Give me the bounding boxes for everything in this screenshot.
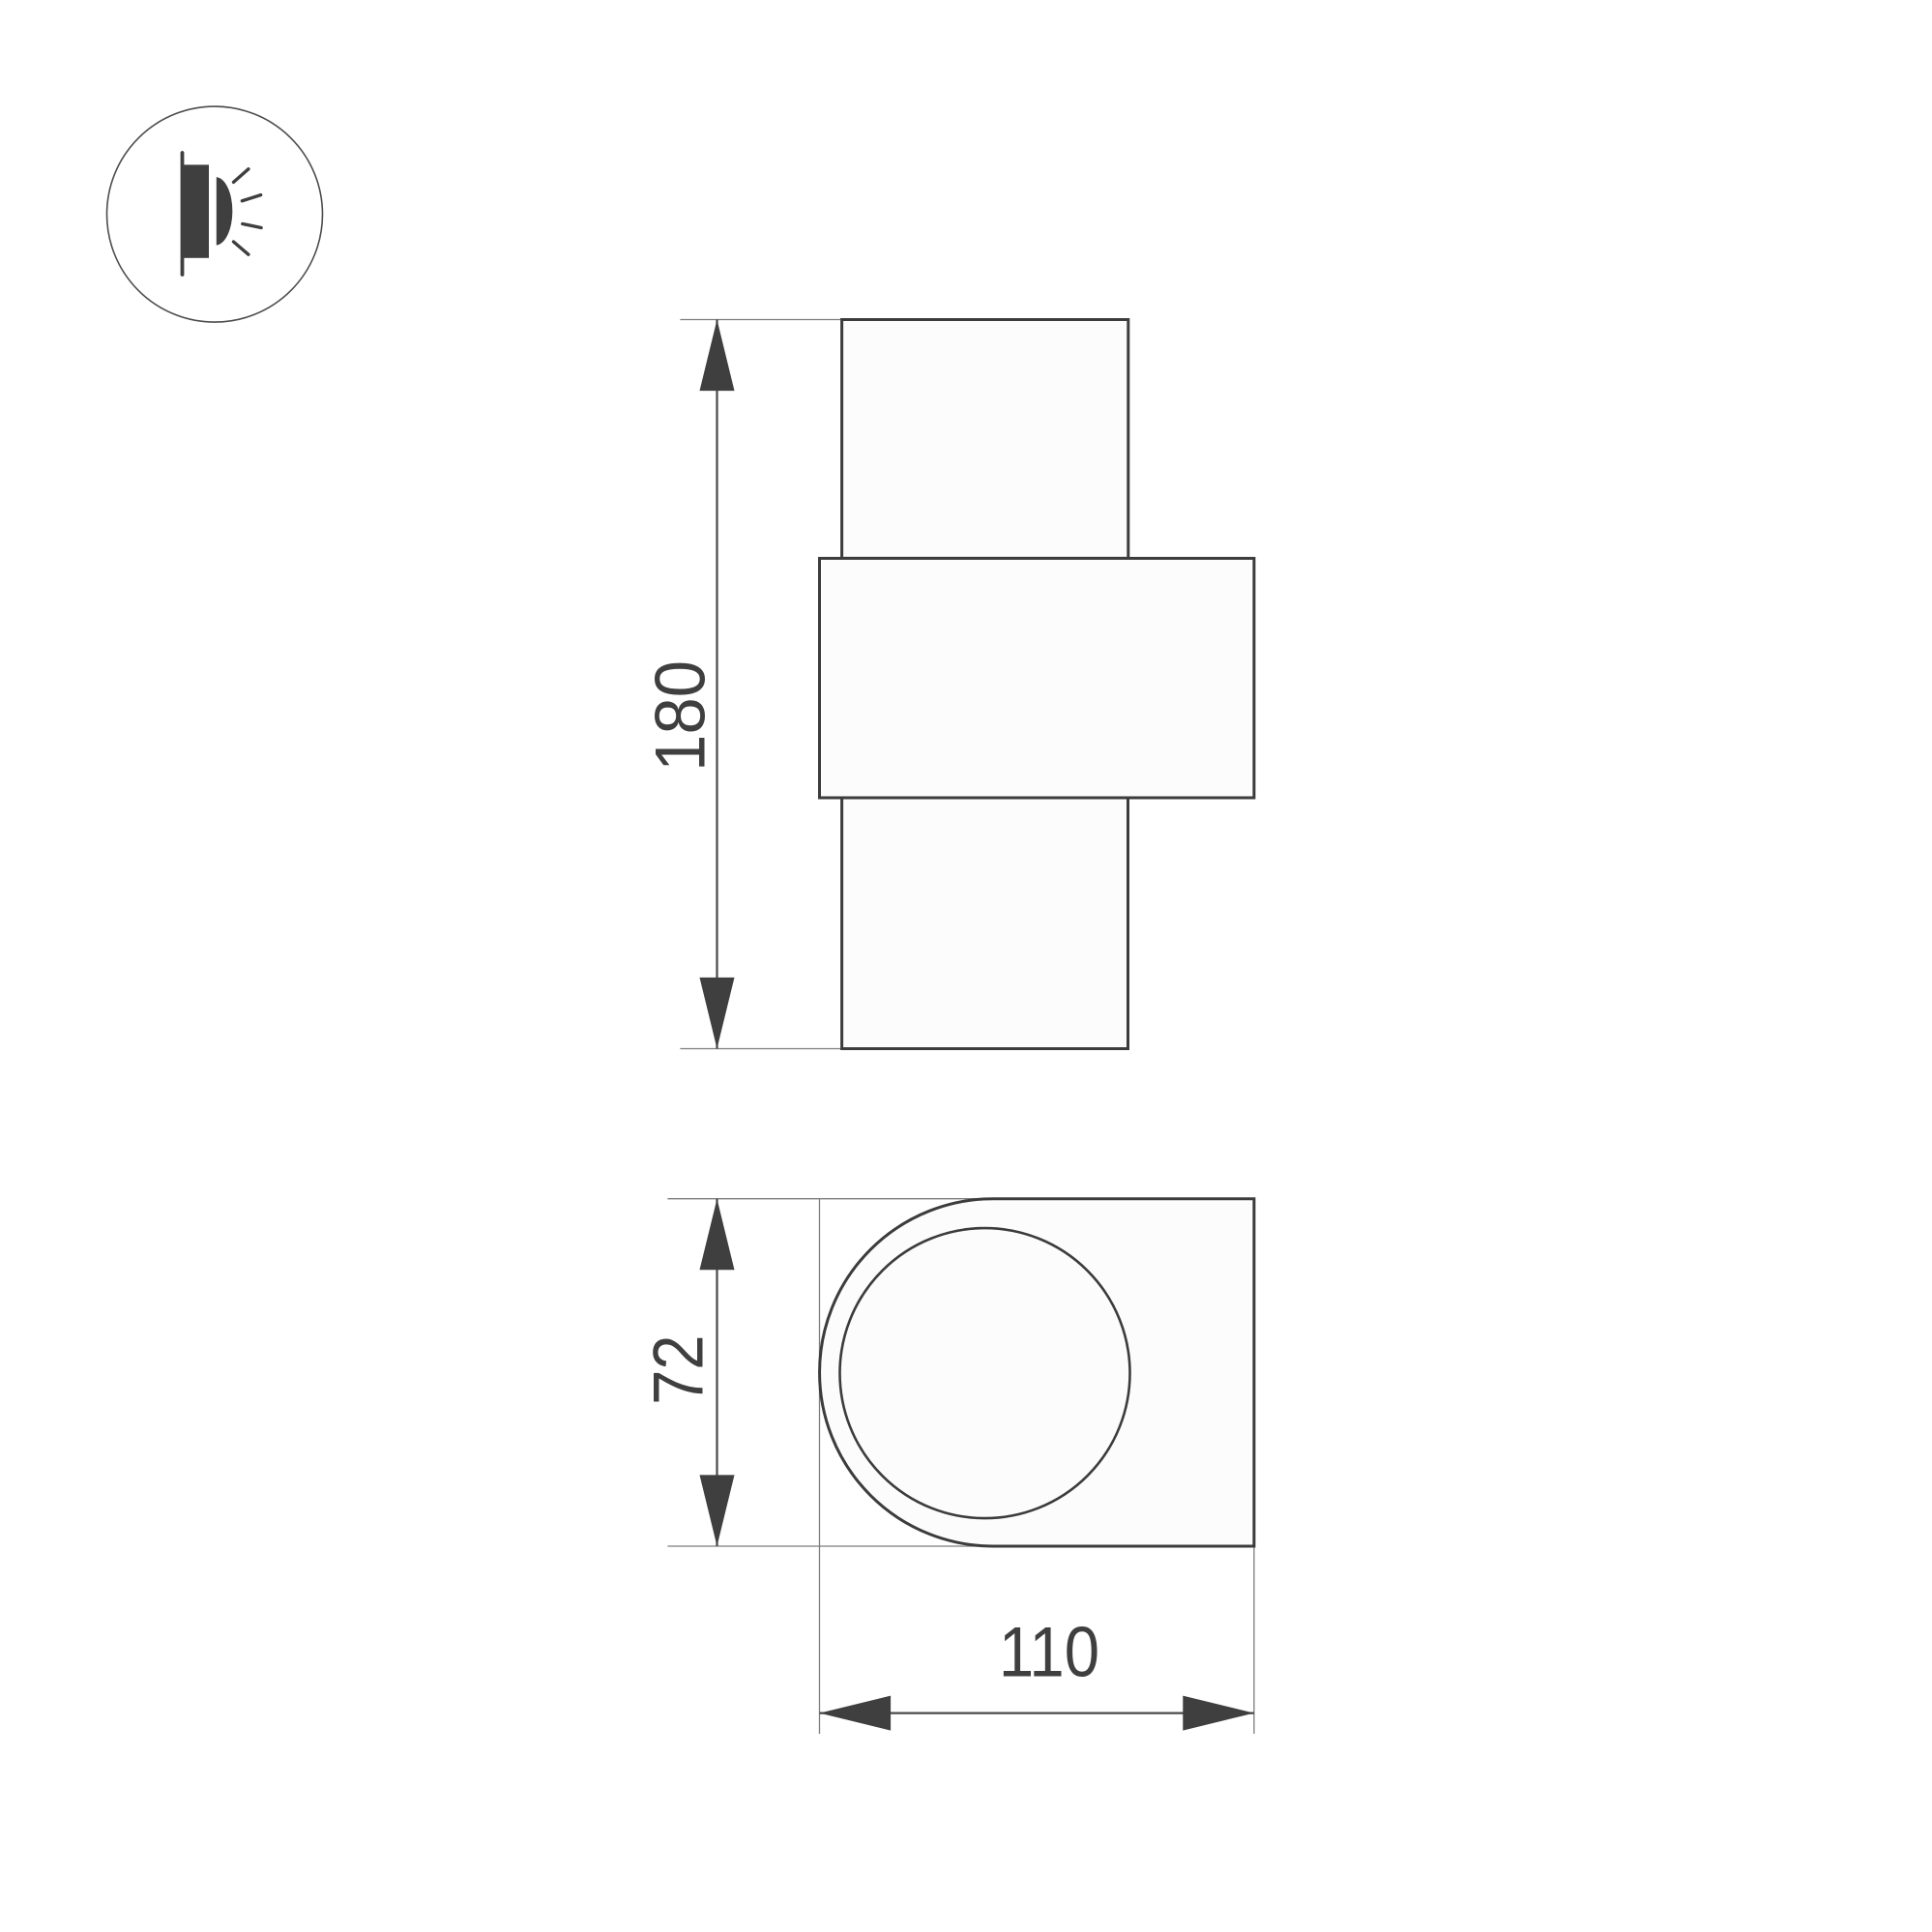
svg-text:72: 72 bbox=[638, 1334, 718, 1404]
svg-text:110: 110 bbox=[999, 1612, 1099, 1691]
svg-text:180: 180 bbox=[642, 660, 721, 772]
